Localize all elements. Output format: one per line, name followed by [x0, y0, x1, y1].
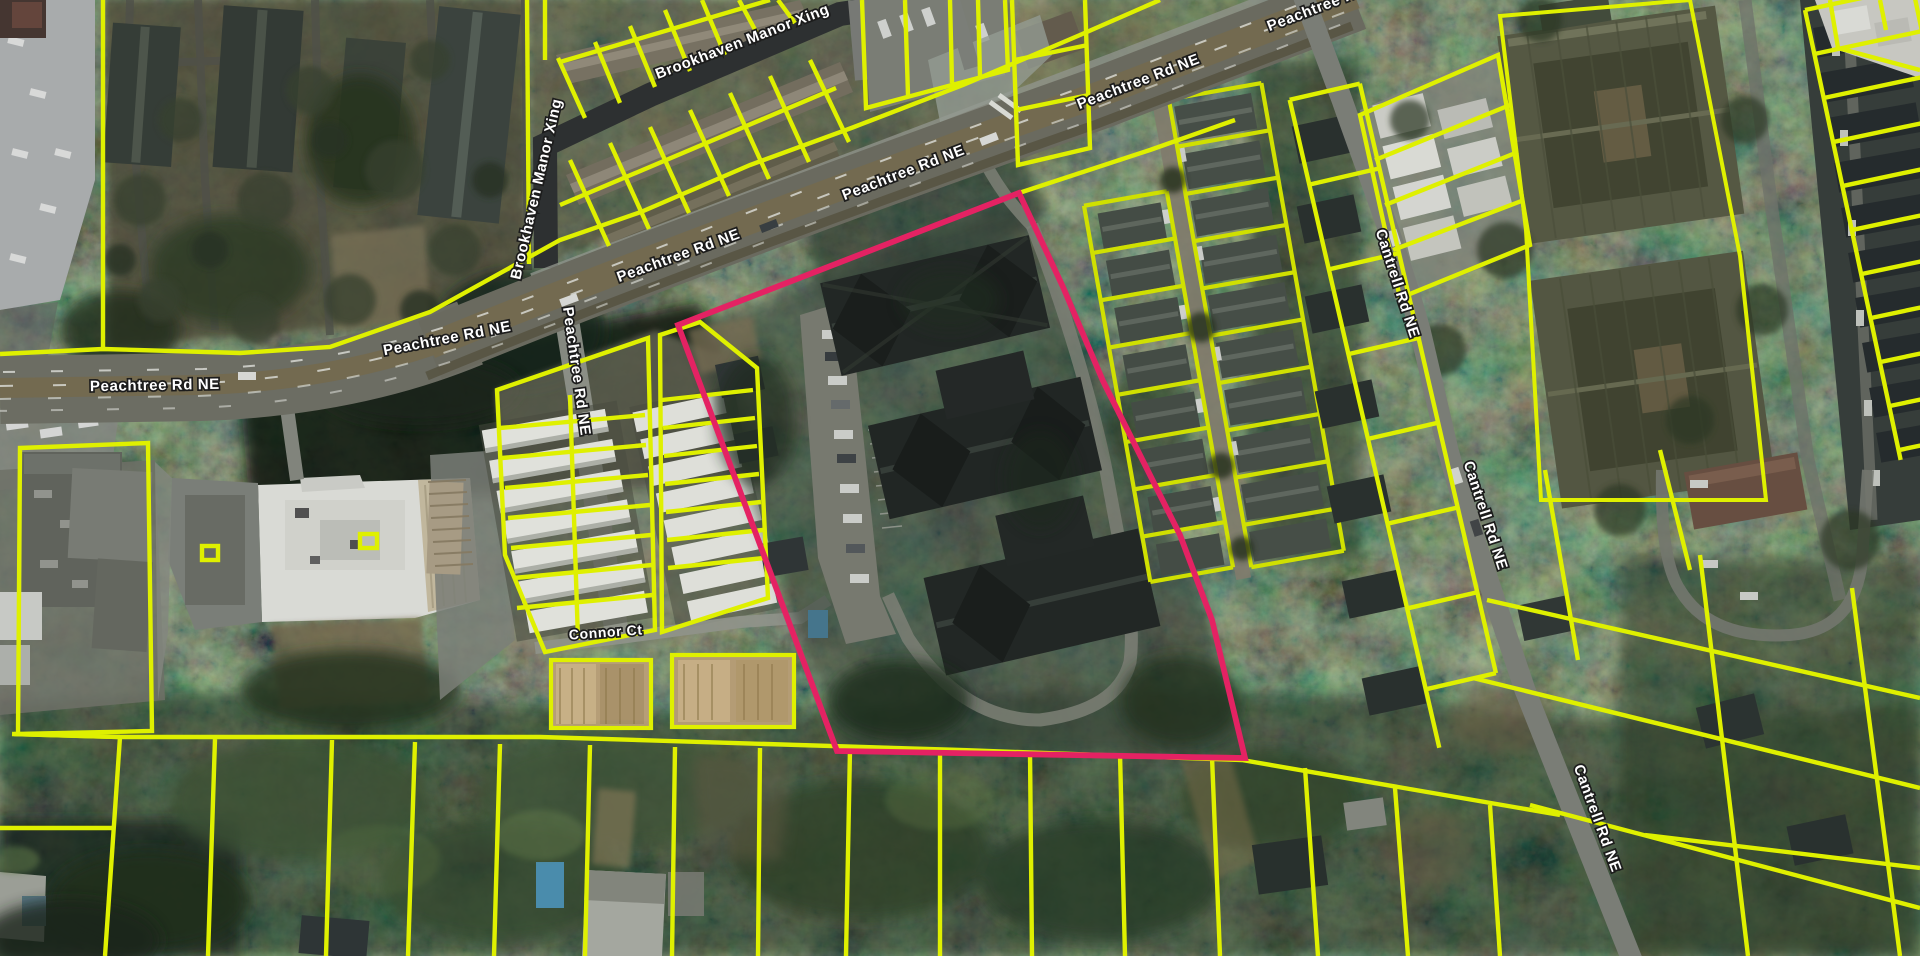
svg-text:Peachtree Rd NE: Peachtree Rd NE: [90, 376, 220, 395]
